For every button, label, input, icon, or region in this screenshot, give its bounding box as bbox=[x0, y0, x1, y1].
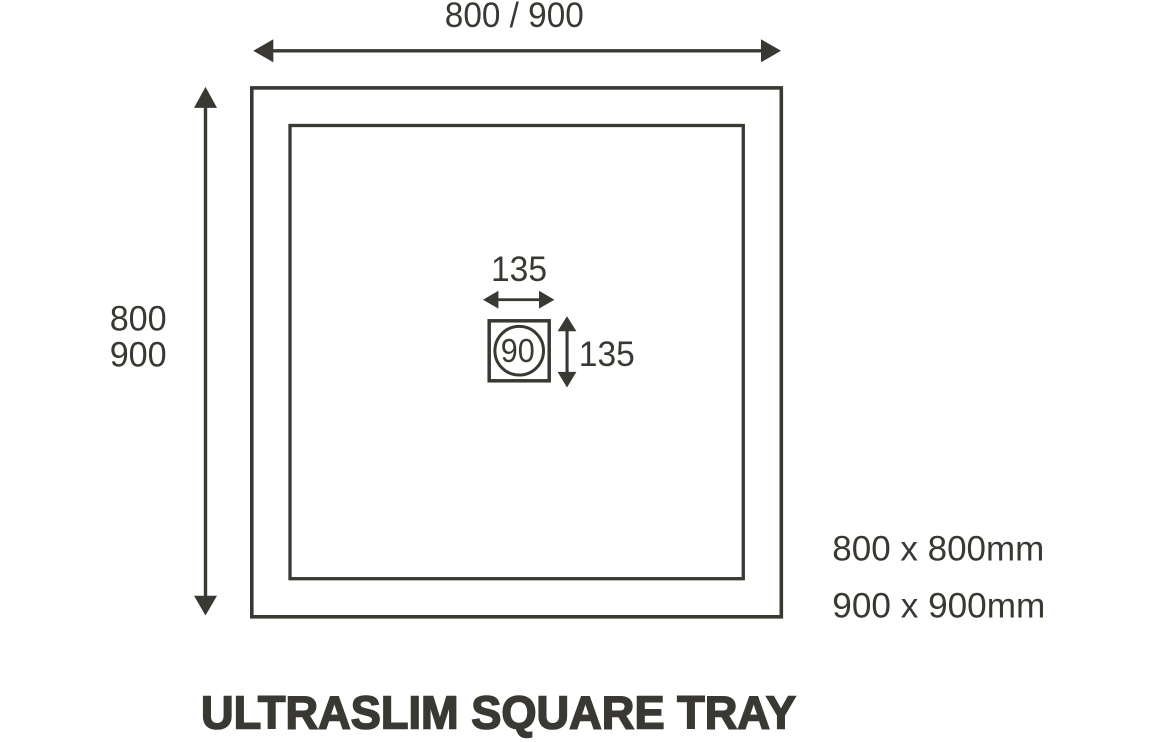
svg-text:800 / 900: 800 / 900 bbox=[445, 0, 584, 35]
svg-text:ULTRASLIM SQUARE TRAY: ULTRASLIM SQUARE TRAY bbox=[201, 687, 796, 739]
svg-text:90: 90 bbox=[501, 332, 535, 369]
svg-text:900: 900 bbox=[110, 336, 167, 375]
svg-text:900 x 900mm: 900 x 900mm bbox=[832, 587, 1045, 626]
svg-text:800: 800 bbox=[110, 300, 167, 339]
svg-text:800 x 800mm: 800 x 800mm bbox=[832, 530, 1044, 569]
svg-text:135: 135 bbox=[579, 335, 635, 374]
svg-text:135: 135 bbox=[491, 250, 547, 289]
